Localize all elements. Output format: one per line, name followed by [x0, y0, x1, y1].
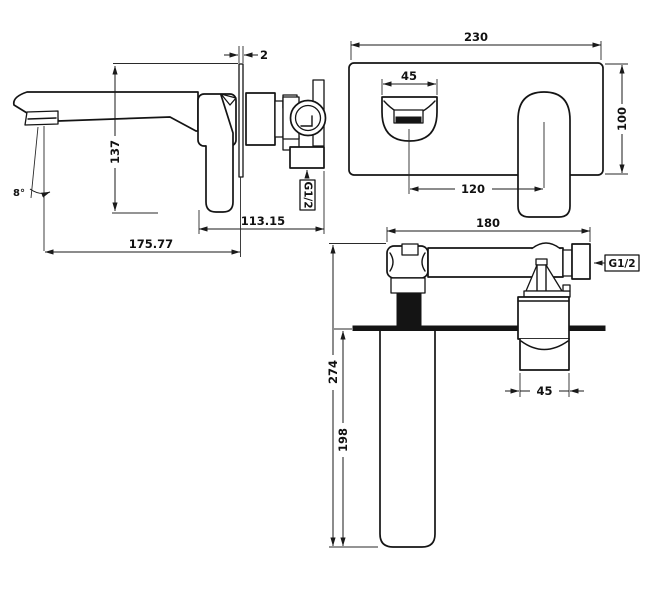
handle-grip-plan [520, 339, 569, 370]
technical-drawing-page: 2 137 8° 113.15 175.77 G1/2 [0, 0, 646, 600]
aerator-front-slot [396, 117, 421, 123]
spout-connector-block [397, 293, 421, 326]
dim-text-handle-width: 45 [536, 384, 552, 398]
inlet-fitting [572, 244, 590, 279]
dim-text-spout-width: 45 [401, 69, 417, 83]
dim-text-center-spacing: 120 [461, 182, 485, 196]
plan-view: 180 G1/2 274 198 45 [326, 216, 639, 547]
handle-housing-plan [518, 297, 569, 339]
cartridge-collar [275, 101, 283, 137]
valve-outlet-circle-inner [296, 106, 321, 131]
dim-text-projection: 198 [336, 428, 350, 452]
dim-text-angle: 8° [13, 188, 25, 199]
dim-text-body-depth: 113.15 [241, 214, 285, 228]
inlet-collar [563, 250, 572, 276]
spout-tube-plan [380, 331, 435, 547]
valve-lower-box [290, 147, 324, 168]
dim-text-body-width: 180 [476, 216, 500, 230]
thread-label-plan: G1/2 [608, 258, 635, 270]
cartridge-drum [246, 93, 275, 145]
dim-text-height: 137 [108, 140, 122, 164]
spout-port-tab [402, 244, 418, 255]
dim-text-total-depth: 274 [326, 360, 340, 384]
stream-angle-line [31, 127, 38, 198]
technical-drawing-canvas: 2 137 8° 113.15 175.77 G1/2 [0, 0, 646, 600]
dim-text-spout-reach: 175.77 [129, 237, 173, 251]
aerator-slot [28, 118, 56, 119]
wall-plate-edge [239, 64, 243, 177]
side-view: 2 137 8° 113.15 175.77 G1/2 [13, 46, 326, 257]
dim-text-plate-thickness: 2 [260, 48, 268, 62]
dim-text-plate-height: 100 [615, 107, 629, 131]
angle-arc [30, 189, 50, 193]
flange-notch [563, 285, 570, 291]
dim-text-plate-width: 230 [464, 30, 488, 44]
thread-label-side: G1/2 [302, 181, 314, 208]
turret-tab [536, 259, 547, 265]
spout-flange-plan [391, 278, 425, 293]
turret-flange [524, 291, 570, 297]
front-view: 230 45 100 120 [349, 30, 629, 217]
